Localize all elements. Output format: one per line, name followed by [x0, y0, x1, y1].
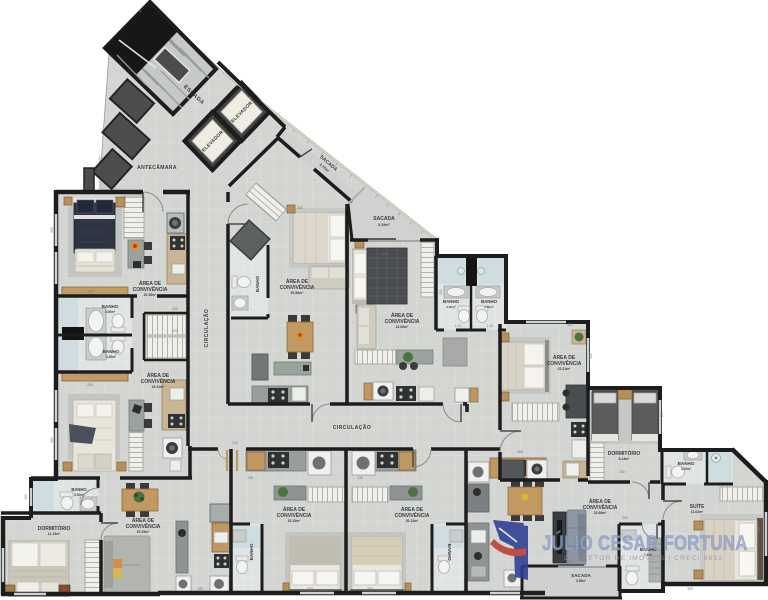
svg-text:11.02m²: 11.02m²	[691, 510, 704, 514]
svg-text:300: 300	[297, 206, 303, 210]
svg-text:300: 300	[307, 587, 313, 591]
svg-text:22.06m²: 22.06m²	[396, 325, 409, 329]
svg-text:BANHO: BANHO	[71, 487, 87, 492]
svg-text:ÁREA DE: ÁREA DE	[391, 312, 414, 319]
svg-text:BANHO: BANHO	[443, 299, 460, 304]
svg-text:22.96m²: 22.96m²	[594, 511, 607, 515]
svg-text:20.31m²: 20.31m²	[152, 385, 165, 389]
svg-text:20.56m²: 20.56m²	[291, 291, 304, 295]
svg-text:CONVIVÊNCIA: CONVIVÊNCIA	[126, 522, 161, 530]
svg-text:2.35m²: 2.35m²	[576, 579, 586, 583]
svg-text:ÁREA DE: ÁREA DE	[147, 372, 170, 379]
svg-text:11.13m²: 11.13m²	[48, 532, 61, 536]
svg-text:8.13m²: 8.13m²	[619, 457, 631, 461]
svg-text:BANHO: BANHO	[102, 304, 119, 309]
svg-text:135: 135	[357, 476, 363, 480]
svg-text:20.13m²: 20.13m²	[406, 519, 419, 523]
svg-text:200: 200	[172, 329, 178, 333]
svg-text:ÁREA DE: ÁREA DE	[401, 506, 424, 513]
svg-text:ÁREA DE: ÁREA DE	[286, 278, 309, 285]
svg-text:SACADA: SACADA	[571, 573, 591, 578]
svg-text:300: 300	[687, 587, 693, 591]
svg-text:BANHO: BANHO	[255, 275, 260, 292]
svg-text:ÁREA DE: ÁREA DE	[132, 517, 155, 524]
svg-text:CONVIVÊNCIA: CONVIVÊNCIA	[141, 377, 176, 385]
svg-text:195: 195	[197, 587, 203, 591]
svg-text:CONVIVÊNCIA: CONVIVÊNCIA	[547, 359, 582, 367]
svg-text:3.00m²: 3.00m²	[105, 310, 115, 314]
svg-text:CIRCULAÇÃO: CIRCULAÇÃO	[203, 309, 210, 348]
svg-text:CORRETOR DE IMÓVEIS | CRECI 86: CORRETOR DE IMÓVEIS | CRECI 8652	[564, 553, 723, 562]
svg-text:CONVIVÊNCIA: CONVIVÊNCIA	[583, 503, 618, 511]
svg-text:250: 250	[87, 290, 93, 294]
svg-text:250: 250	[622, 516, 628, 520]
svg-text:300: 300	[367, 587, 373, 591]
svg-text:3.00m²: 3.00m²	[446, 305, 456, 309]
svg-text:1.20: 1.20	[487, 324, 494, 328]
svg-text:SACADA: SACADA	[373, 216, 395, 222]
svg-text:135: 135	[247, 476, 253, 480]
svg-text:CONVIVÊNCIA: CONVIVÊNCIA	[280, 283, 315, 291]
svg-text:250: 250	[87, 383, 93, 387]
svg-text:3.02m²: 3.02m²	[74, 493, 84, 497]
svg-text:ÁREA DE: ÁREA DE	[553, 354, 576, 361]
svg-text:ÁREA DE: ÁREA DE	[589, 498, 612, 505]
svg-text:5.19m²: 5.19m²	[378, 223, 390, 227]
svg-text:320: 320	[232, 441, 238, 445]
svg-text:1.20: 1.20	[455, 324, 462, 328]
svg-text:550: 550	[50, 227, 54, 233]
svg-text:BANHO: BANHO	[103, 349, 120, 354]
svg-text:CONVIVÊNCIA: CONVIVÊNCIA	[395, 511, 430, 519]
svg-text:22.21m²: 22.21m²	[558, 367, 571, 371]
svg-text:JÚLIO CESAR FORTUNA: JÚLIO CESAR FORTUNA	[542, 531, 748, 555]
svg-text:BANHO: BANHO	[481, 299, 498, 304]
svg-text:DORMITÓRIO: DORMITÓRIO	[608, 449, 641, 457]
svg-text:SUÍTE: SUÍTE	[690, 502, 705, 510]
svg-text:BANHO: BANHO	[249, 543, 254, 560]
svg-text:3.20m²: 3.20m²	[106, 355, 116, 359]
svg-text:22.25m²: 22.25m²	[137, 530, 150, 534]
svg-text:250: 250	[619, 470, 625, 474]
svg-text:20.13m²: 20.13m²	[288, 519, 301, 523]
svg-text:20.16m²: 20.16m²	[144, 293, 157, 297]
svg-text:ÁREA DE: ÁREA DE	[139, 280, 162, 287]
svg-text:3.02m²: 3.02m²	[681, 467, 691, 471]
svg-text:240: 240	[757, 527, 761, 533]
svg-text:BANHO: BANHO	[678, 461, 695, 466]
svg-text:CONVIVÊNCIA: CONVIVÊNCIA	[277, 511, 312, 519]
svg-text:DORMITÓRIO: DORMITÓRIO	[38, 524, 71, 532]
svg-text:250: 250	[439, 289, 443, 295]
svg-text:250: 250	[589, 353, 593, 359]
svg-text:CONVIVÊNCIA: CONVIVÊNCIA	[133, 285, 168, 293]
svg-text:CIRCULAÇÃO: CIRCULAÇÃO	[333, 424, 372, 431]
svg-text:ÁREA DE: ÁREA DE	[283, 506, 306, 513]
svg-text:ANTECÂMARA: ANTECÂMARA	[137, 164, 177, 171]
svg-text:3.00m²: 3.00m²	[484, 305, 494, 309]
svg-text:565: 565	[517, 450, 523, 454]
svg-text:BANHO: BANHO	[447, 544, 452, 561]
svg-text:200: 200	[172, 307, 178, 311]
svg-text:420: 420	[567, 323, 573, 327]
svg-text:550: 550	[50, 437, 54, 443]
svg-text:CONVIVÊNCIA: CONVIVÊNCIA	[385, 317, 420, 325]
svg-text:300: 300	[382, 252, 388, 256]
svg-text:250: 250	[660, 411, 664, 417]
svg-text:120: 120	[24, 494, 28, 500]
